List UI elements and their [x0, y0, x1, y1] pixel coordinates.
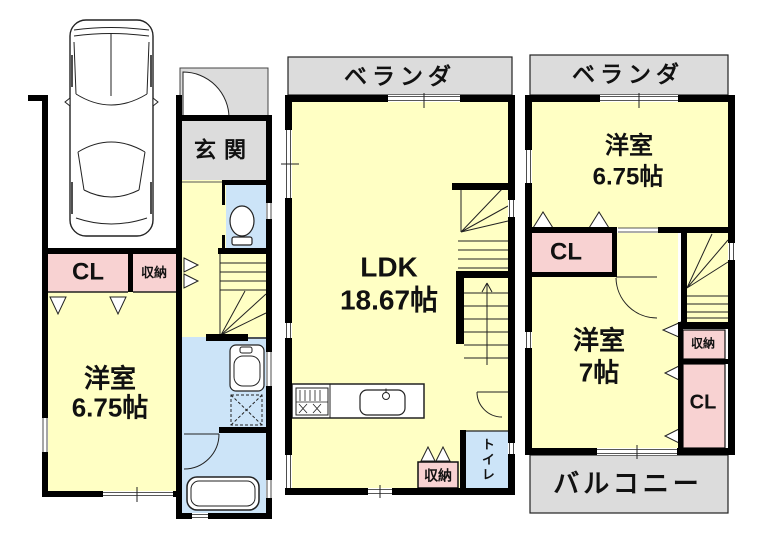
kitchen-counter [292, 384, 424, 418]
label-room-1f-size: 6.75帖 [72, 394, 149, 421]
label-room-1f: 洋室 [84, 365, 136, 392]
label-storage-3f: 収納 [691, 338, 715, 351]
label-ldk: LDK [360, 252, 418, 281]
toilet-icon [230, 206, 254, 245]
label-room1-3f: 洋室 [605, 133, 653, 158]
car-icon [65, 20, 158, 236]
floor3-plan [525, 55, 735, 513]
label-storage-1f: 収納 [141, 266, 167, 280]
label-toilet-2f: トイレ [480, 438, 494, 483]
label-ldk-size: 18.67帖 [340, 285, 438, 314]
label-veranda-2f: ベランダ [344, 64, 456, 88]
label-veranda-3f: ベランダ [572, 62, 684, 86]
floorplan: 玄関 CL 収納 洋室 6.75帖 ベランダ LDK 18.67帖 収納 トイレ… [0, 0, 768, 549]
label-room2-3f-size: 7帖 [579, 359, 619, 386]
kitchen-sink-icon [360, 389, 405, 416]
hall3f-opening [618, 228, 658, 232]
label-closet2-3f: CL [690, 393, 717, 414]
label-room2-3f: 洋室 [573, 327, 625, 354]
label-closet-1f: CL [72, 259, 104, 284]
label-closet1-3f: CL [550, 239, 582, 264]
label-storage-2f: 収納 [424, 469, 452, 484]
label-room1-3f-size: 6.75帖 [593, 164, 664, 189]
label-balcony: バルコニー [553, 470, 702, 497]
vanity-sink-icon [230, 345, 264, 391]
label-entrance: 玄関 [194, 138, 254, 161]
stove-icon [296, 388, 328, 415]
bathtub-icon [187, 477, 259, 510]
